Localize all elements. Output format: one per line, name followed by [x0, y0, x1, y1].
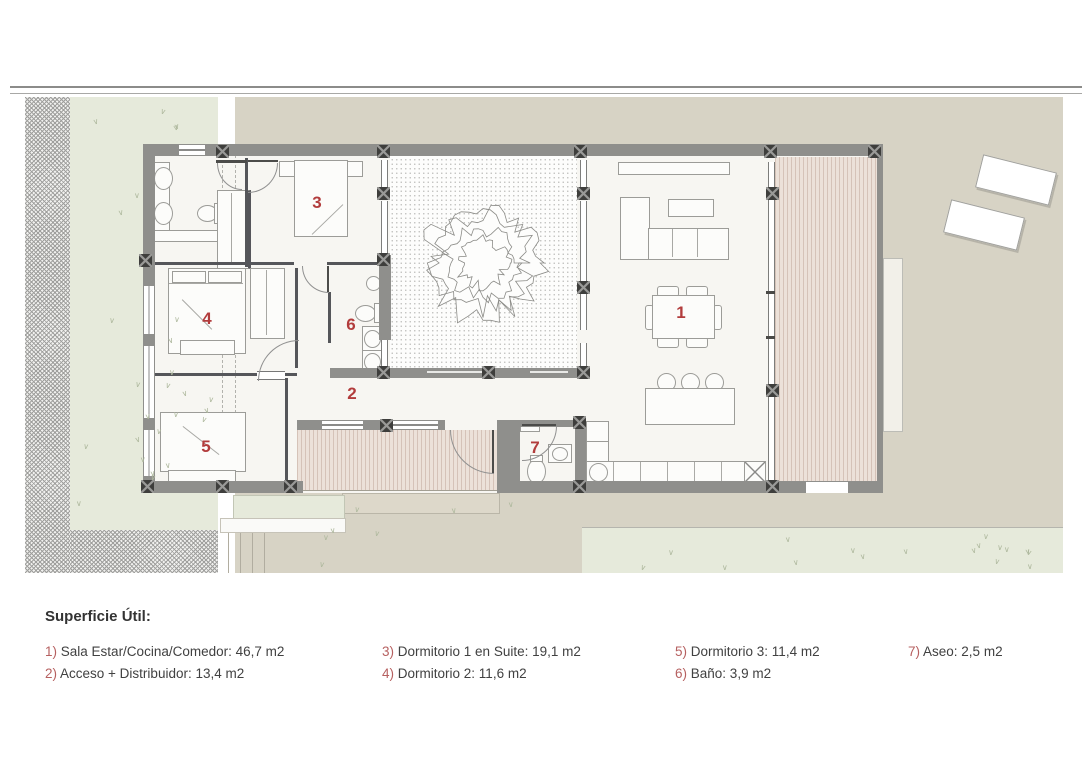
terrace-step	[342, 493, 500, 514]
legend-item: 7) Aseo: 2,5 m2	[908, 641, 1003, 663]
column	[766, 384, 779, 397]
legend-item-text: Aseo: 2,5 m2	[923, 644, 1003, 659]
grass-tuft: ∨	[82, 442, 89, 451]
room-label-5: 5	[201, 437, 210, 457]
door-leaf	[492, 430, 494, 473]
column	[764, 145, 777, 158]
door-leaf	[248, 160, 278, 162]
floor-plan-sheet: 1 2 3 4 5 6 7 Superficie Útil: 1) Sala E…	[0, 0, 1092, 768]
gravel-path-bottom	[70, 530, 218, 573]
kitchen-cabinet	[586, 441, 609, 463]
grass-tuft: ∨	[144, 413, 151, 422]
legend-item-text: Acceso + Distribuidor: 13,4 m2	[60, 666, 244, 681]
column	[574, 145, 587, 158]
grass-tuft: ∨	[451, 507, 458, 516]
sofa-seam	[697, 229, 698, 257]
wall-segment	[247, 262, 294, 265]
column	[577, 187, 590, 200]
wall-segment	[328, 292, 331, 343]
grass-tuft: ∨	[1027, 563, 1033, 571]
white-step	[220, 518, 346, 533]
glass-wall	[580, 160, 587, 188]
door-opening	[445, 420, 497, 430]
road-line	[10, 86, 1082, 88]
nightstand	[279, 161, 295, 177]
step-line	[228, 531, 229, 573]
window	[391, 421, 438, 429]
legend-item-number: 1)	[45, 644, 57, 659]
wardrobe-line	[231, 193, 232, 264]
column	[139, 254, 152, 267]
room-label-7: 7	[530, 438, 539, 458]
kitchen-island	[645, 388, 735, 425]
grass-tuft: ∨	[722, 564, 728, 572]
legend-item-number: 3)	[382, 644, 394, 659]
terrace-east	[775, 157, 877, 481]
window	[144, 346, 154, 418]
sofa-seam	[672, 229, 673, 257]
wall-opening	[806, 482, 848, 493]
window	[322, 421, 363, 429]
grass-tuft: ∨	[507, 501, 514, 509]
fridge	[586, 421, 609, 443]
sink	[552, 447, 568, 461]
planter-strip	[883, 258, 903, 432]
column	[284, 480, 297, 493]
column	[216, 480, 229, 493]
sink	[154, 202, 173, 225]
legend-item-text: Dormitorio 1 en Suite: 19,1 m2	[398, 644, 581, 659]
wall-segment	[150, 262, 247, 265]
grass-tuft: ∨	[169, 369, 175, 377]
column	[573, 416, 586, 429]
window-inset	[427, 371, 482, 373]
grass-tuft: ∨	[76, 500, 82, 508]
window	[144, 286, 154, 334]
tree-canopy-scribble	[424, 205, 549, 322]
column	[766, 187, 779, 200]
sink	[154, 167, 173, 190]
legend-item-number: 5)	[675, 644, 687, 659]
step-line	[240, 531, 241, 573]
desk	[180, 340, 235, 355]
grass-tuft: ∨	[108, 317, 115, 326]
legend-item: 3) Dormitorio 1 en Suite: 19,1 m2	[382, 641, 581, 663]
pillow	[208, 271, 242, 283]
column	[766, 480, 779, 493]
door-leaf	[216, 160, 247, 163]
legend-item: 4) Dormitorio 2: 11,6 m2	[382, 663, 581, 685]
grass-tuft: ∨	[997, 544, 1004, 552]
room-label-6: 6	[346, 315, 355, 335]
column	[573, 480, 586, 493]
kitchen-sink	[589, 463, 608, 482]
legend-item-text: Sala Estar/Cocina/Comedor: 46,7 m2	[61, 644, 285, 659]
vanity-counter	[153, 230, 219, 242]
column	[216, 145, 229, 158]
coffee-table	[668, 199, 714, 217]
legend-item: 2) Acceso + Distribuidor: 13,4 m2	[45, 663, 284, 685]
legend-item-text: Dormitorio 2: 11,6 m2	[398, 666, 527, 681]
grass-tuft: ∨	[792, 559, 799, 568]
wall-segment	[285, 378, 288, 481]
terrace-east-wall	[877, 150, 883, 493]
grass-tuft: ∨	[982, 532, 989, 541]
glass-wall	[768, 397, 775, 481]
legend-column: 1) Sala Estar/Cocina/Comedor: 46,7 m2 2)…	[45, 641, 284, 685]
sofa	[620, 197, 650, 260]
mullion	[766, 336, 775, 339]
grass-tuft: ∨	[174, 316, 181, 325]
sofa	[648, 228, 729, 260]
room-label-3: 3	[312, 193, 321, 213]
door-leaf	[327, 266, 329, 292]
glass-wall	[580, 294, 587, 330]
toilet	[355, 305, 376, 322]
column	[577, 366, 590, 379]
door-leaf	[522, 424, 556, 426]
wall-segment	[327, 262, 380, 265]
grass-tuft: ∨	[1004, 546, 1010, 554]
legend-item-number: 6)	[675, 666, 687, 681]
step-line	[264, 531, 265, 573]
column	[377, 145, 390, 158]
glass-wall	[580, 201, 587, 281]
closet	[250, 268, 285, 339]
column	[377, 187, 390, 200]
gravel-path-left	[25, 97, 70, 573]
grass-tuft: ∨	[785, 536, 792, 545]
legend-title: Superficie Útil:	[45, 608, 151, 625]
column	[377, 253, 390, 266]
entry-path	[220, 97, 235, 150]
legend-column: 5) Dormitorio 3: 11,4 m2 6) Baño: 3,9 m2	[675, 641, 820, 685]
glass-wall	[768, 162, 775, 188]
garden-step	[233, 495, 345, 520]
column	[377, 366, 390, 379]
column	[482, 366, 495, 379]
grass-tuft: ∨	[155, 427, 162, 436]
bed-headboard-line	[169, 283, 243, 284]
glass-wall	[381, 201, 388, 255]
porch-east-wall	[497, 420, 520, 490]
legend-item: 5) Dormitorio 3: 11,4 m2	[675, 641, 820, 663]
grass-tuft: ∨	[172, 410, 179, 419]
glass-wall	[381, 160, 388, 188]
grass-tuft: ∨	[323, 534, 329, 542]
cooktop	[744, 461, 766, 483]
kitchen-counter	[586, 461, 766, 483]
legend-item-number: 4)	[382, 666, 394, 681]
glass-wall	[381, 340, 388, 368]
legend-item-number: 2)	[45, 666, 57, 681]
grass-tuft: ∨	[667, 549, 673, 557]
wall-segment	[150, 373, 257, 376]
legend-column: 7) Aseo: 2,5 m2	[908, 641, 1003, 663]
column	[868, 145, 881, 158]
window-inset	[530, 371, 568, 373]
legend-item: 1) Sala Estar/Cocina/Comedor: 46,7 m2	[45, 641, 284, 663]
legend-item-number: 7)	[908, 644, 920, 659]
legend-item-text: Dormitorio 3: 11,4 m2	[691, 644, 820, 659]
sideboard	[618, 162, 730, 175]
step-line	[252, 531, 253, 573]
bath-east-wall	[379, 255, 391, 340]
garden-bottom-right	[582, 527, 1063, 573]
column	[577, 281, 590, 294]
closet-line	[266, 270, 267, 335]
room-label-1: 1	[676, 303, 685, 323]
grass-tuft: ∨	[134, 192, 140, 200]
column	[380, 419, 393, 432]
grass-tuft: ∨	[140, 456, 146, 464]
room-label-4: 4	[202, 309, 211, 329]
legend-item: 6) Baño: 3,9 m2	[675, 663, 820, 685]
legend-column: 3) Dormitorio 1 en Suite: 19,1 m2 4) Dor…	[382, 641, 581, 685]
pillow	[172, 271, 206, 283]
legend-item-text: Baño: 3,9 m2	[691, 666, 771, 681]
glass-wall	[580, 343, 587, 368]
courtyard-tree	[402, 181, 564, 347]
mullion	[766, 291, 775, 294]
nightstand	[347, 161, 363, 177]
road-line	[10, 93, 1082, 94]
grass-tuft: ∨	[850, 547, 856, 555]
grass-tuft: ∨	[902, 548, 909, 557]
room-label-2: 2	[347, 384, 356, 404]
window	[179, 145, 205, 155]
